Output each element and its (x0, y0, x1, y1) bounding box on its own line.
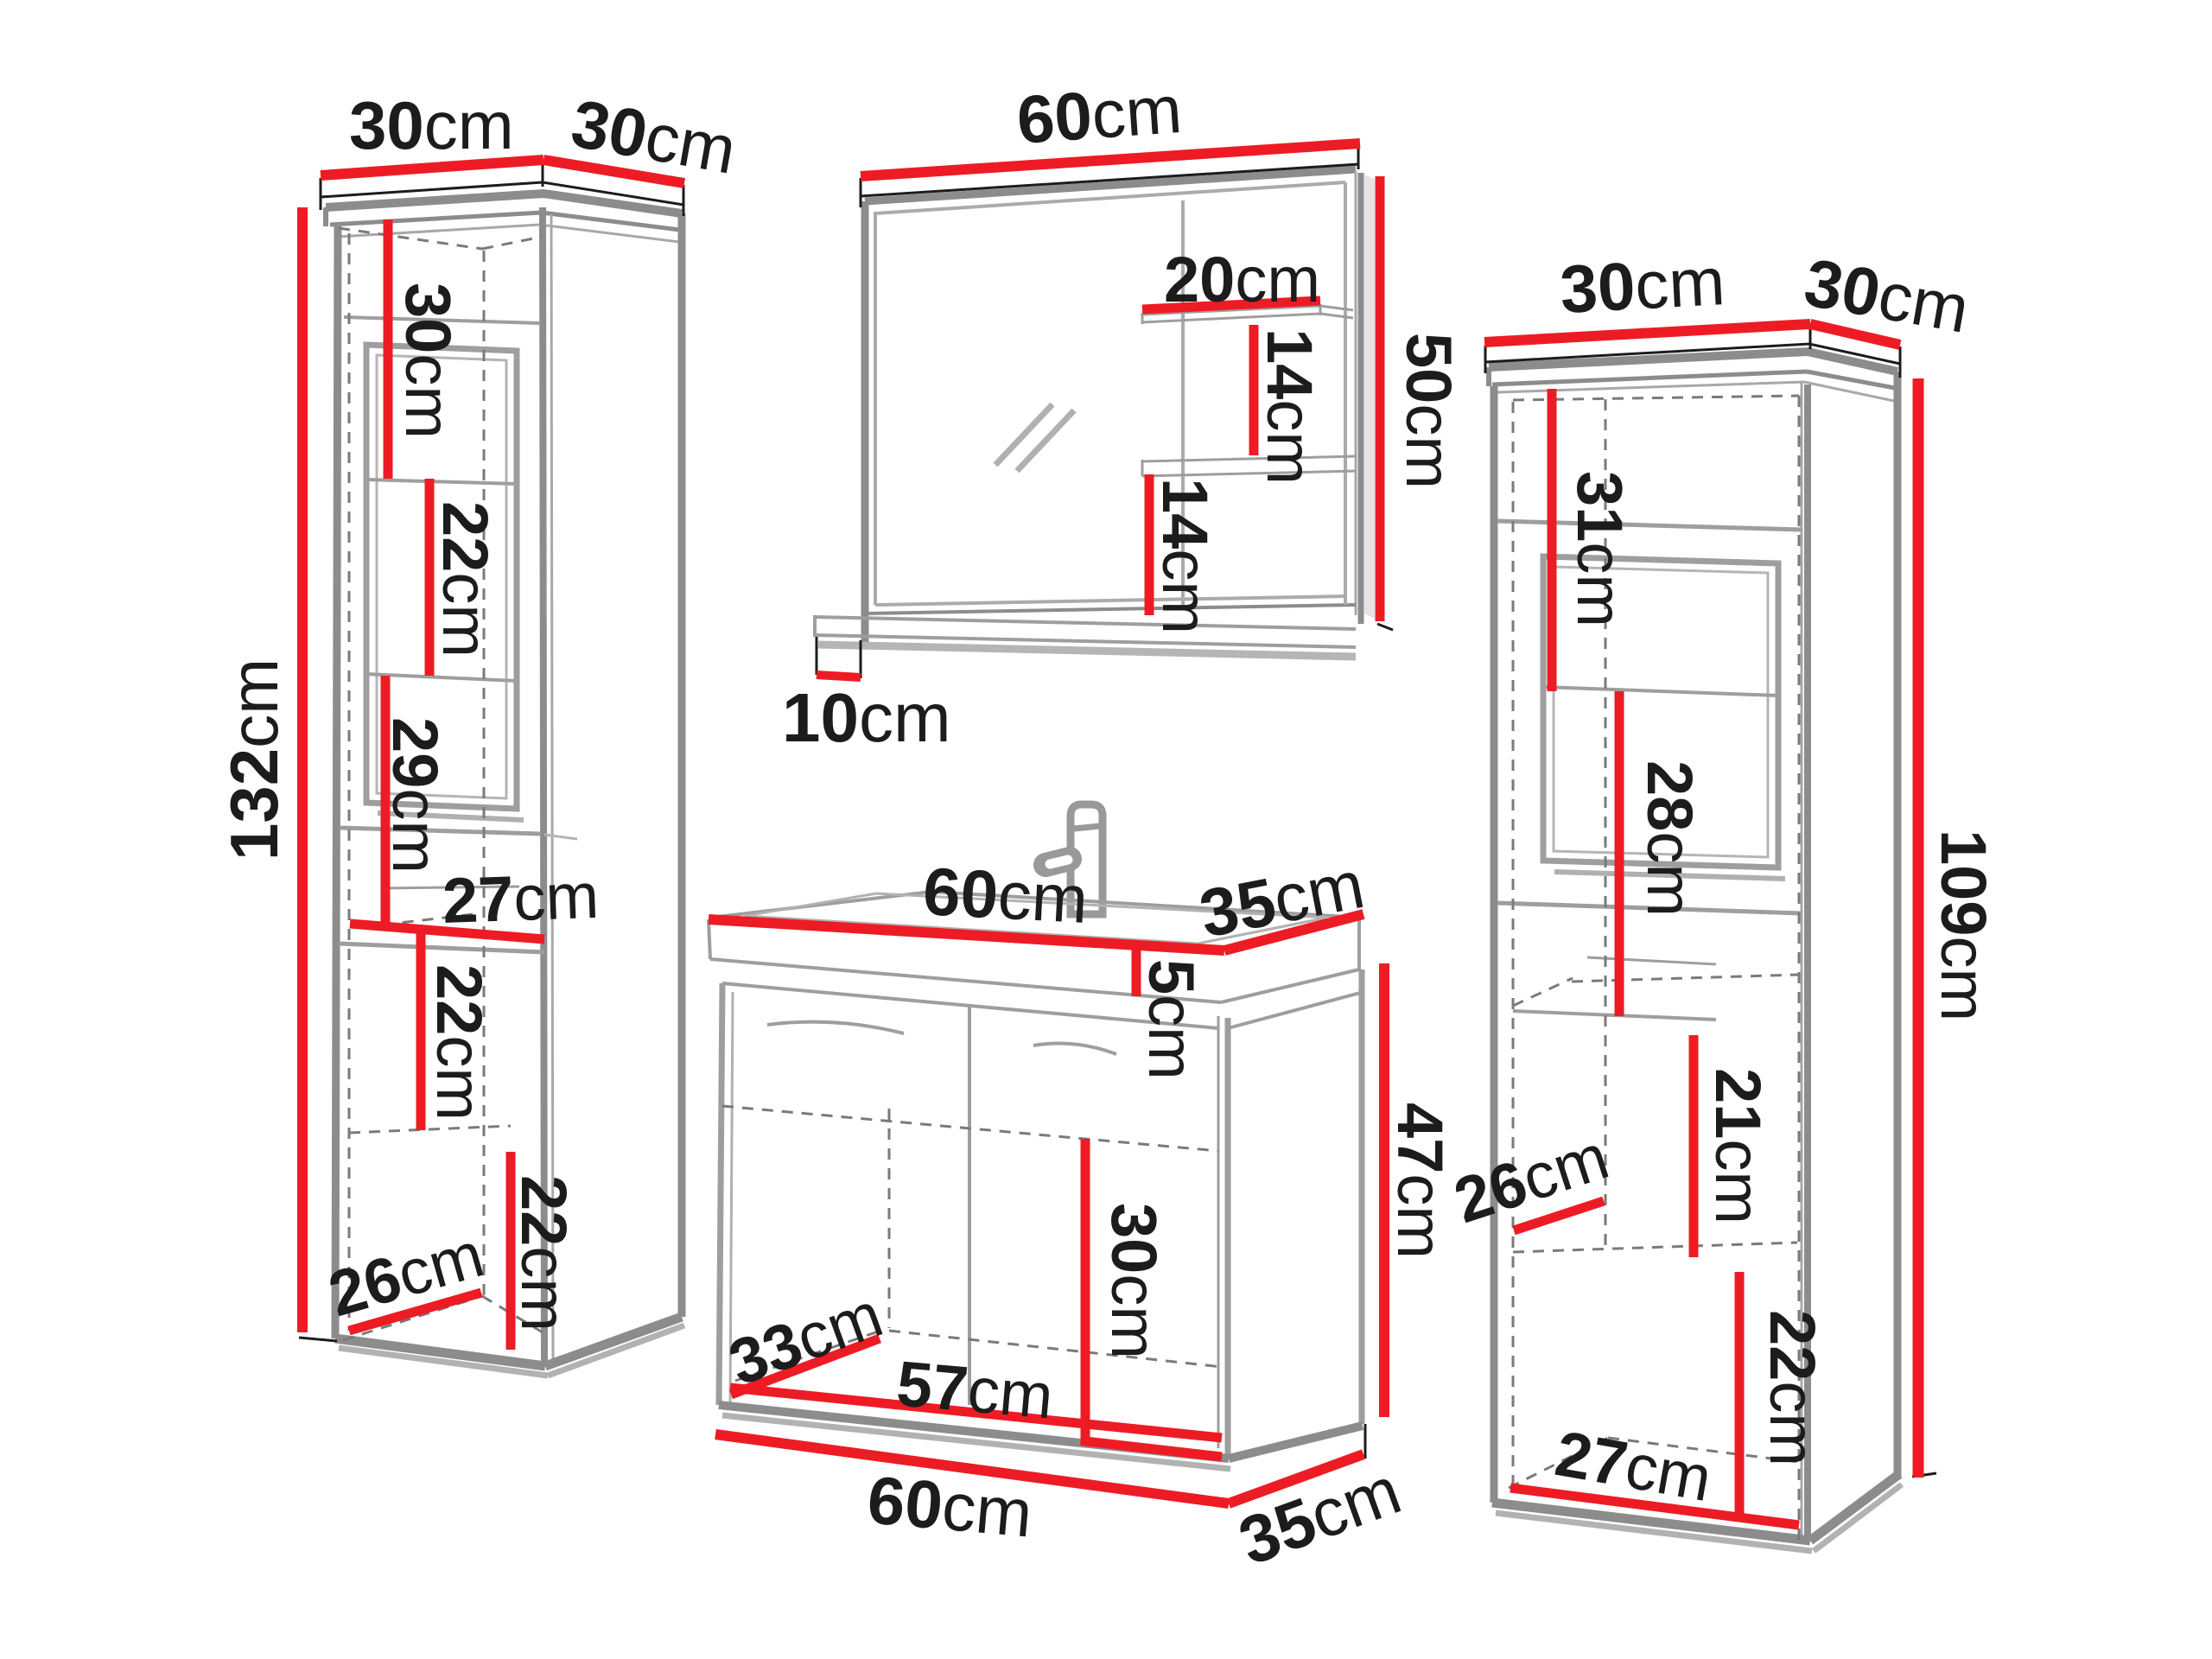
svg-text:22cm: 22cm (1757, 1310, 1828, 1466)
svg-text:60cm: 60cm (865, 1461, 1036, 1551)
svg-text:14cm: 14cm (1149, 478, 1221, 634)
svg-text:28cm: 28cm (1634, 760, 1706, 917)
svg-text:27cm: 27cm (442, 860, 601, 937)
svg-text:50cm: 50cm (1393, 333, 1465, 489)
svg-text:47cm: 47cm (1384, 1103, 1456, 1259)
svg-text:30cm: 30cm (1558, 243, 1726, 327)
svg-text:30cm: 30cm (1098, 1203, 1170, 1359)
svg-text:30cm: 30cm (349, 87, 514, 163)
svg-text:109cm: 109cm (1928, 829, 1999, 1021)
svg-text:57cm: 57cm (894, 1347, 1057, 1432)
svg-text:22cm: 22cm (423, 964, 495, 1121)
svg-text:22cm: 22cm (508, 1175, 580, 1332)
svg-text:10cm: 10cm (782, 679, 951, 756)
svg-text:60cm: 60cm (1014, 71, 1184, 158)
svg-text:30cm: 30cm (392, 283, 464, 439)
svg-text:22cm: 22cm (429, 501, 501, 658)
svg-text:29cm: 29cm (379, 717, 451, 874)
svg-text:31cm: 31cm (1564, 471, 1636, 627)
svg-text:20cm: 20cm (1164, 244, 1320, 315)
svg-text:132cm: 132cm (216, 658, 292, 861)
svg-text:14cm: 14cm (1254, 328, 1325, 485)
svg-text:21cm: 21cm (1702, 1068, 1774, 1224)
svg-text:5cm: 5cm (1135, 959, 1207, 1080)
svg-text:60cm: 60cm (921, 853, 1090, 938)
